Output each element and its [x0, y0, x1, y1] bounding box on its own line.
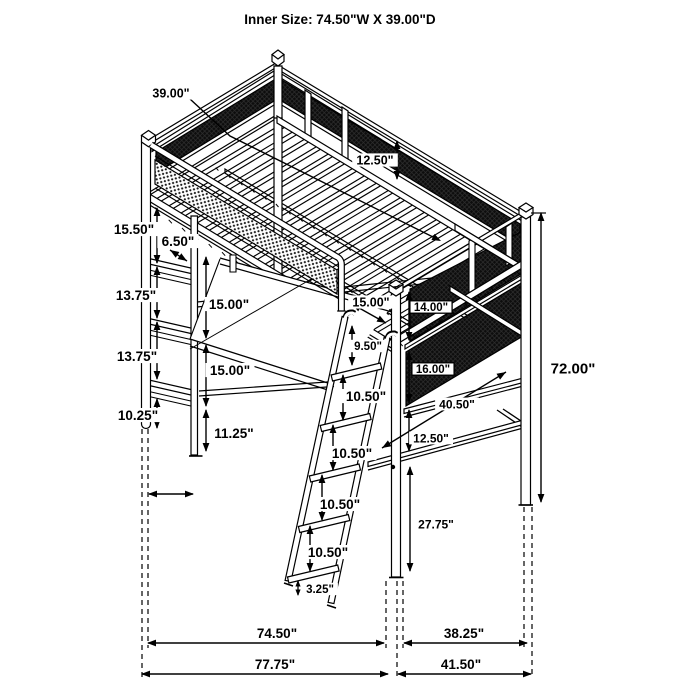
svg-text:74.50": 74.50" [257, 626, 297, 641]
svg-text:10.50": 10.50" [320, 497, 360, 512]
svg-text:10.50": 10.50" [308, 545, 348, 560]
svg-text:13.75": 13.75" [117, 349, 157, 364]
svg-text:12.50": 12.50" [356, 153, 393, 167]
svg-text:13.75": 13.75" [116, 288, 156, 303]
svg-text:10.50": 10.50" [332, 446, 372, 461]
svg-text:77.75": 77.75" [255, 657, 295, 672]
svg-text:41.50": 41.50" [441, 657, 481, 672]
svg-text:15.00": 15.00" [210, 363, 250, 378]
svg-text:10.50": 10.50" [346, 389, 386, 404]
svg-text:16.00": 16.00" [416, 364, 450, 376]
svg-text:10.25": 10.25" [118, 408, 158, 423]
svg-text:40.50": 40.50" [439, 397, 475, 411]
svg-text:15.00": 15.00" [352, 295, 389, 309]
svg-text:38.25": 38.25" [444, 626, 484, 641]
svg-text:15.50": 15.50" [114, 222, 154, 237]
svg-text:27.75": 27.75" [418, 517, 454, 531]
svg-text:14.00": 14.00" [414, 302, 448, 314]
svg-text:12.50": 12.50" [413, 431, 449, 445]
svg-text:Inner Size: 74.50"W X 39.00"D: Inner Size: 74.50"W X 39.00"D [244, 12, 436, 27]
svg-text:72.00": 72.00" [551, 360, 596, 377]
svg-text:3.25": 3.25" [306, 584, 334, 596]
svg-text:39.00": 39.00" [152, 86, 189, 100]
svg-text:6.50": 6.50" [162, 234, 195, 249]
svg-text:9.50": 9.50" [354, 341, 382, 353]
svg-text:15.00": 15.00" [209, 297, 249, 312]
svg-text:11.25": 11.25" [214, 426, 253, 441]
